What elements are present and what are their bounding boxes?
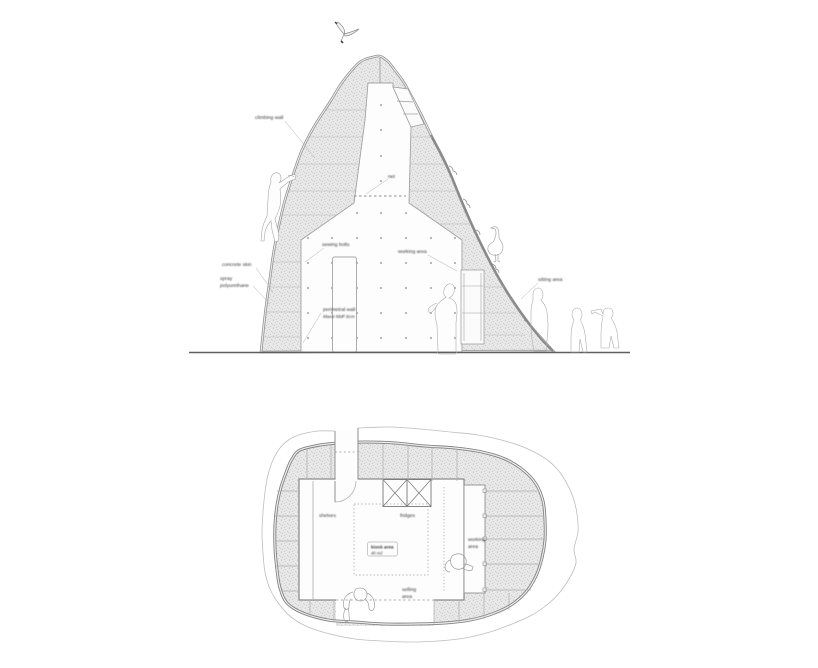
svg-text:kiosk area: kiosk area (371, 545, 394, 550)
svg-text:concrete skin: concrete skin (222, 262, 252, 268)
svg-text:shelves: shelves (319, 513, 336, 519)
svg-text:spray: spray (220, 276, 233, 282)
svg-text:polyurethane: polyurethane (220, 283, 249, 289)
svg-text:perimetral wall: perimetral wall (323, 307, 355, 313)
svg-text:area: area (402, 594, 412, 600)
svg-text:sitting area: sitting area (538, 277, 563, 283)
svg-text:selling: selling (402, 587, 416, 593)
svg-text:working area: working area (398, 249, 427, 255)
svg-text:sewing bolts: sewing bolts (322, 242, 350, 248)
svg-text:working: working (468, 537, 485, 543)
svg-text:climbing wall: climbing wall (255, 115, 283, 121)
svg-text:net: net (388, 174, 396, 180)
svg-text:area: area (468, 544, 478, 550)
svg-text:fridges: fridges (400, 513, 416, 519)
svg-text:Maxxi MdF 8cm: Maxxi MdF 8cm (323, 314, 355, 319)
svg-text:40 m2: 40 m2 (371, 551, 383, 556)
